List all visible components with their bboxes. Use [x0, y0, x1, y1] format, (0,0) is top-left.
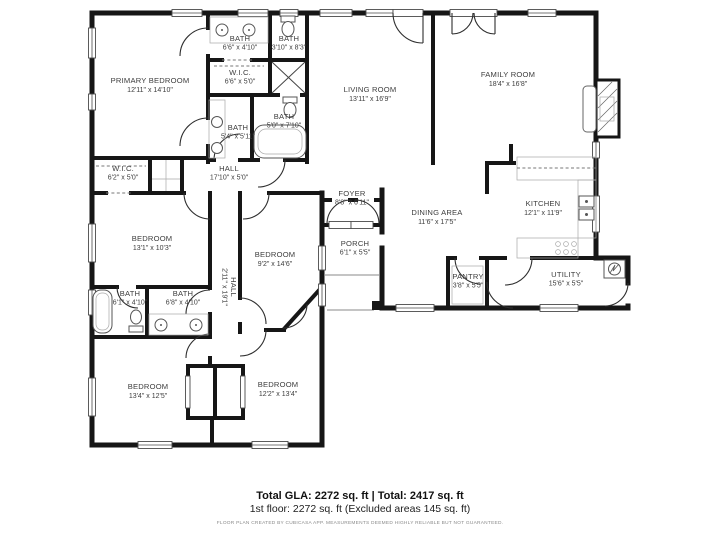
room-dims: 13'1" x 10'3"	[133, 245, 172, 252]
front-door	[329, 222, 373, 229]
bathtub-icon	[93, 290, 112, 333]
room-name: FOYER	[338, 189, 365, 198]
room-dims: 3'8" x 5'5"	[453, 283, 484, 290]
window	[89, 224, 96, 262]
room-name: BEDROOM	[132, 234, 173, 243]
room-dims: 5'4" x 5'11"	[221, 134, 255, 141]
room-dims: 3'10" x 8'3"	[272, 45, 307, 52]
room-dims: 6'6" x 4'10"	[223, 45, 258, 52]
room-dims: 11'6" x 17'5"	[418, 219, 456, 226]
window	[138, 442, 172, 449]
room-name: BATH	[230, 34, 251, 43]
room-name: BATH	[274, 112, 295, 121]
room-dims: 12'2" x 13'4"	[259, 391, 298, 398]
room-label-porch: PORCH6'1" x 5'5"	[340, 239, 371, 257]
room-name: BATH	[120, 289, 141, 298]
room-name: UTILITY	[551, 270, 581, 279]
room-label-living-room: LIVING ROOM13'11" x 16'9"	[344, 85, 397, 103]
door-arc	[605, 283, 628, 306]
window	[593, 142, 600, 158]
door-arc	[258, 160, 285, 187]
room-name: KITCHEN	[526, 199, 561, 208]
room-name: W.I.C.	[112, 164, 134, 173]
bathtub-icon	[254, 125, 306, 158]
room-name: LIVING ROOM	[344, 85, 397, 94]
patio-door	[393, 10, 423, 44]
room-name: BEDROOM	[258, 380, 299, 389]
window	[396, 305, 434, 312]
door-arc	[180, 28, 208, 56]
stove-icon	[579, 196, 594, 220]
window	[89, 378, 96, 416]
room-label-primary-bedroom: PRIMARY BEDROOM12'11" x 14'10"	[111, 76, 190, 94]
room-name: PORCH	[341, 239, 369, 248]
porch-post	[372, 301, 382, 310]
room-dims: 17'10" x 5'0"	[210, 175, 249, 182]
window	[89, 94, 96, 110]
window	[252, 442, 288, 449]
cooktop-icon	[556, 242, 577, 255]
room-label-bedroom-5: BEDROOM12'2" x 13'4"	[258, 380, 299, 398]
room-label-kitchen: KITCHEN12'1" x 11'9"	[524, 199, 562, 217]
door-arc	[243, 193, 269, 219]
room-label-wic-2: W.I.C.6'2" x 5'0"	[108, 164, 139, 182]
window	[238, 10, 268, 17]
room-label-bedroom-3: BEDROOM9'2" x 14'6"	[255, 250, 296, 268]
room-name: HALL	[219, 164, 239, 173]
room-dims: 6'8" x 4'10"	[166, 300, 201, 307]
room-name: W.I.C.	[229, 68, 251, 77]
room-dims: 12'1" x 11'9"	[524, 210, 562, 217]
room-dims: 2'11" x 19'1"	[221, 268, 228, 306]
window	[319, 284, 326, 306]
door-arc	[240, 298, 266, 324]
hall-closet-shelves	[152, 160, 180, 191]
room-name: DINING AREA	[411, 208, 463, 217]
window	[172, 10, 202, 17]
room-label-bedroom-4: BEDROOM13'4" x 12'5"	[128, 382, 169, 400]
room-labels: PRIMARY BEDROOM12'11" x 14'10" BATH6'6" …	[108, 34, 584, 400]
sink-icon	[212, 117, 223, 128]
window	[319, 246, 326, 270]
room-label-family-room: FAMILY ROOM18'4" x 16'8"	[481, 70, 535, 88]
door-arc	[487, 282, 513, 308]
window	[366, 10, 393, 17]
room-label-bath-4: BATH5'0" x 7'10"	[267, 112, 302, 130]
room-name: BATH	[279, 34, 300, 43]
door-arc	[184, 193, 210, 219]
room-label-bath-6: BATH6'8" x 4'10"	[166, 289, 201, 307]
room-dims: 5'0" x 7'10"	[267, 123, 302, 130]
room-name: BATH	[173, 289, 194, 298]
closet-door	[241, 376, 246, 408]
room-label-foyer: FOYER8'8" x 6'11"	[335, 189, 369, 207]
window	[320, 10, 352, 17]
room-name: PANTRY	[452, 272, 483, 281]
room-label-bath-2: BATH3'10" x 8'3"	[272, 34, 307, 52]
room-label-utility: UTILITY15'6" x 5'5"	[549, 270, 584, 288]
toilet-icon	[129, 310, 143, 332]
fireplace-icon	[583, 80, 619, 137]
window	[528, 10, 556, 17]
door-arc	[505, 258, 532, 285]
room-dims: 13'4" x 12'5"	[129, 393, 168, 400]
room-dims: 8'8" x 6'11"	[335, 200, 369, 207]
room-label-dining-area: DINING AREA11'6" x 17'5"	[411, 208, 463, 226]
room-dims: 13'11" x 16'9"	[349, 96, 391, 103]
room-name: BEDROOM	[255, 250, 296, 259]
window	[540, 305, 578, 312]
doors	[117, 10, 628, 409]
window	[280, 10, 298, 17]
floor-plan-page: PRIMARY BEDROOM12'11" x 14'10" BATH6'6" …	[0, 0, 720, 540]
room-label-pantry: PANTRY3'8" x 5'5"	[452, 272, 483, 290]
sink-icon	[212, 143, 223, 154]
disclaimer-text: FLOOR PLAN CREATED BY CUBICASA APP. MEAS…	[0, 521, 720, 526]
room-dims: 9'2" x 14'6"	[258, 261, 293, 268]
room-name: PRIMARY BEDROOM	[111, 76, 190, 85]
room-dims: 6'6" x 5'0"	[225, 79, 256, 86]
room-label-wic-1: W.I.C.6'6" x 5'0"	[225, 68, 256, 86]
room-name: HALL	[229, 277, 238, 297]
room-name: BEDROOM	[128, 382, 169, 391]
french-doors	[450, 10, 497, 35]
room-dims: 15'6" x 5'5"	[549, 281, 584, 288]
shower-icon	[272, 62, 305, 93]
door-arc	[180, 118, 208, 146]
floor-plan-svg: PRIMARY BEDROOM12'11" x 14'10" BATH6'6" …	[0, 0, 720, 540]
room-label-bedroom-2: BEDROOM13'1" x 10'3"	[132, 234, 173, 252]
washer-icon	[604, 260, 625, 278]
room-dims: 12'11" x 14'10"	[127, 87, 173, 94]
window	[89, 28, 96, 58]
door-arc	[240, 330, 266, 356]
porch-edge	[325, 275, 382, 310]
room-name: FAMILY ROOM	[481, 70, 535, 79]
closet-door	[186, 376, 191, 408]
total-gla-text: Total GLA: 2272 sq. ft | Total: 2417 sq.…	[0, 490, 720, 502]
room-dims: 6'2" x 5'0"	[108, 175, 139, 182]
room-label-hall-2: HALL2'11" x 19'1"	[221, 268, 239, 306]
room-label-hall-1: HALL17'10" x 5'0"	[210, 164, 249, 182]
room-name: BATH	[228, 123, 249, 132]
room-dims: 18'4" x 16'8"	[489, 81, 528, 88]
first-floor-text: 1st floor: 2272 sq. ft (Excluded areas 1…	[0, 503, 720, 515]
room-dims: 6'1" x 5'5"	[340, 250, 371, 257]
room-dims: 6'1" x 4'10"	[113, 300, 148, 307]
